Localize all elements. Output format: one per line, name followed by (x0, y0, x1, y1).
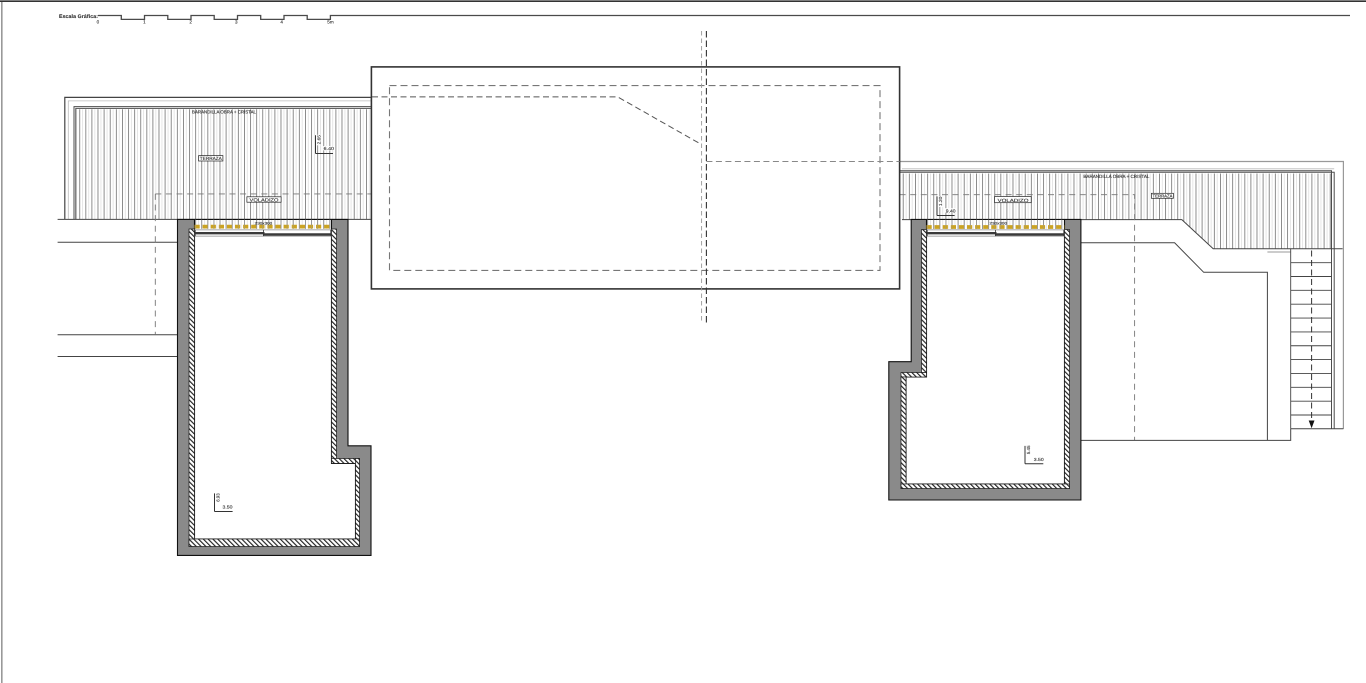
svg-text:6.40: 6.40 (324, 146, 335, 151)
svg-text:3.50: 3.50 (1034, 457, 1045, 462)
svg-text:TERRAZA: TERRAZA (200, 156, 223, 161)
svg-text:9.40: 9.40 (946, 208, 956, 213)
svg-text:VOLADIZO: VOLADIZO (250, 198, 280, 203)
svg-text:2.65: 2.65 (316, 134, 321, 144)
svg-text:4: 4 (280, 19, 283, 24)
svg-text:3: 3 (235, 19, 238, 24)
svg-text:0: 0 (97, 19, 100, 24)
svg-text:TERRAZA: TERRAZA (1153, 194, 1173, 199)
svg-text:Escala Gráfica:: Escala Gráfica: (59, 14, 98, 20)
svg-text:1.20: 1.20 (938, 196, 943, 206)
svg-text:230x300: 230x300 (990, 221, 1008, 225)
svg-text:VOLADIZO: VOLADIZO (998, 198, 1030, 203)
svg-text:6.93: 6.93 (216, 493, 221, 502)
svg-text:BARANDILLA OBRA + CRISTAL: BARANDILLA OBRA + CRISTAL (1083, 174, 1149, 179)
svg-text:230x300: 230x300 (255, 222, 273, 226)
svg-text:BARANDILLA OBRA + CRISTAL: BARANDILLA OBRA + CRISTAL (192, 110, 256, 115)
svg-text:5.45: 5.45 (1026, 445, 1031, 454)
svg-text:3.50: 3.50 (223, 504, 234, 509)
svg-text:1: 1 (143, 19, 146, 24)
svg-text:2: 2 (189, 19, 192, 24)
svg-text:5m: 5m (327, 19, 334, 24)
